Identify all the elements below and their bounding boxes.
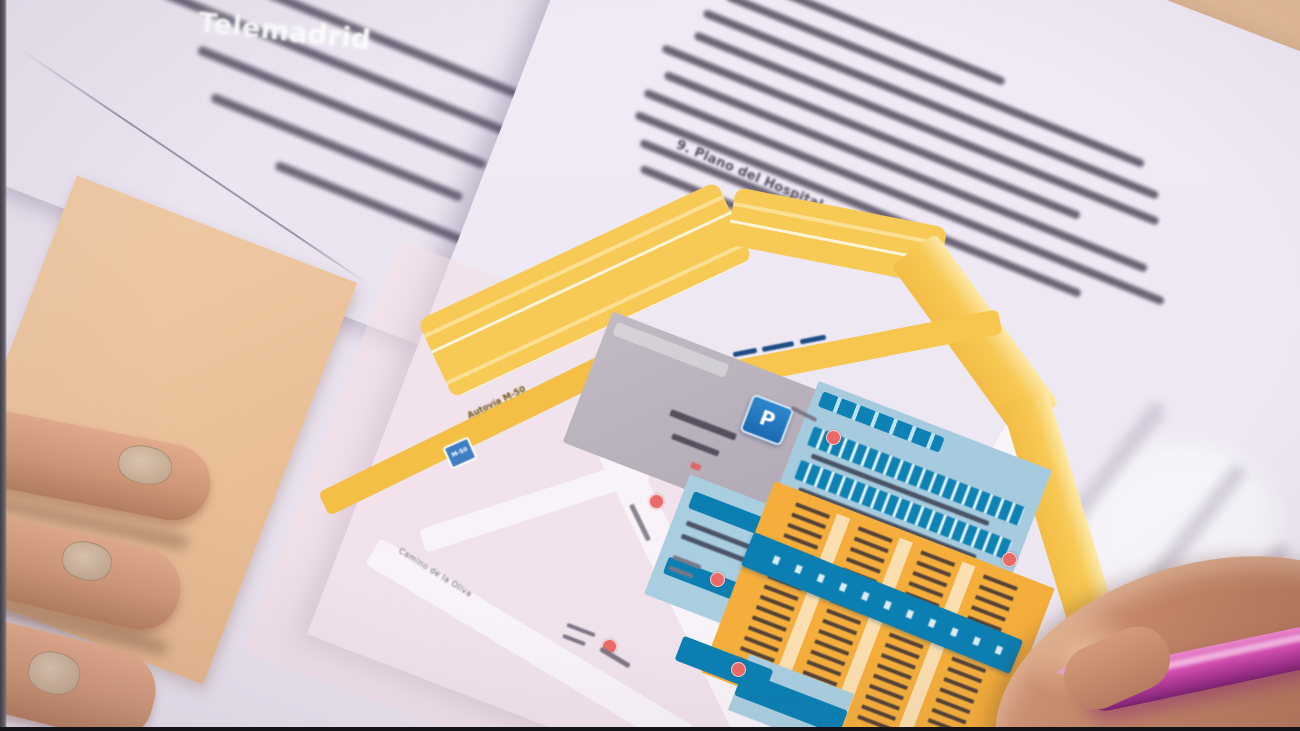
bus-stop-dot	[731, 662, 746, 677]
bus-stop-dot	[649, 494, 664, 509]
building-label-blurred	[671, 433, 720, 457]
building-mark-red	[690, 462, 701, 471]
bus-stop-dot	[1002, 552, 1017, 567]
screen-edge-left	[0, 0, 7, 731]
photo-scene: 9. Plano del Hospital Camino de la Oliva…	[0, 0, 1300, 731]
bus-stop-dot	[826, 430, 841, 445]
screen-edge-bottom	[0, 727, 1300, 731]
bus-stop-dot	[710, 572, 725, 587]
